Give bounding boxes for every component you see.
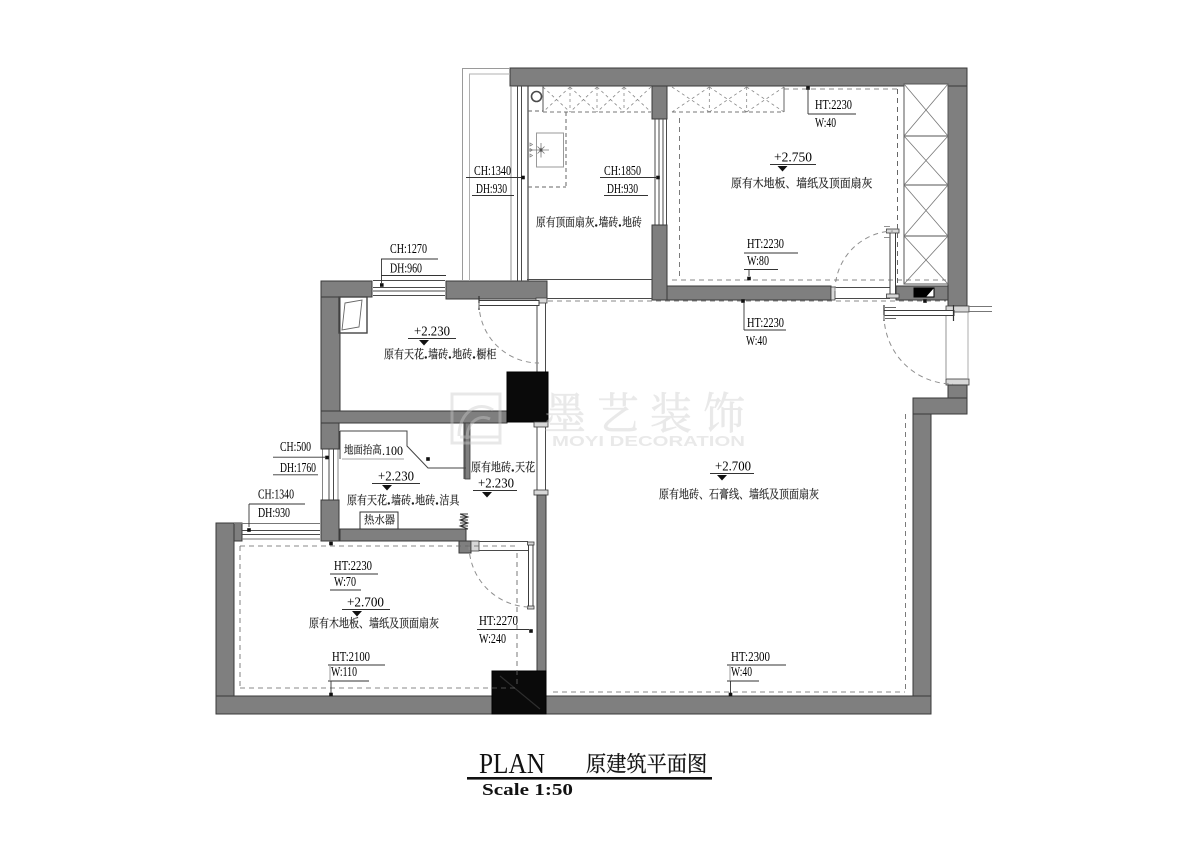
svg-text:HT:2230: HT:2230 — [334, 558, 372, 573]
svg-text:HT:2270: HT:2270 — [479, 613, 518, 628]
svg-text:CH:1270: CH:1270 — [390, 241, 427, 256]
svg-text:CH:1850: CH:1850 — [604, 163, 641, 178]
svg-text:Scale 1:50: Scale 1:50 — [482, 780, 573, 799]
svg-text:HT:2230: HT:2230 — [747, 236, 784, 251]
svg-text:DH:1760: DH:1760 — [280, 460, 316, 475]
svg-text:MOYI DECORATION: MOYI DECORATION — [552, 433, 745, 450]
svg-text:HT:2230: HT:2230 — [747, 315, 784, 330]
svg-text:HT:2100: HT:2100 — [332, 649, 370, 664]
svg-text:PLAN: PLAN — [479, 748, 545, 780]
svg-text:+2.700: +2.700 — [715, 459, 751, 474]
svg-text:DH:930: DH:930 — [476, 181, 507, 196]
svg-text:W:40: W:40 — [731, 664, 752, 679]
svg-text:+2.230: +2.230 — [414, 324, 450, 339]
svg-text:W:110: W:110 — [331, 664, 357, 679]
svg-text:CH:500: CH:500 — [280, 439, 311, 454]
svg-text:W:80: W:80 — [747, 253, 769, 268]
svg-text:W:40: W:40 — [746, 333, 767, 348]
svg-text:W:70: W:70 — [334, 574, 356, 589]
svg-text:HT:2300: HT:2300 — [731, 649, 770, 664]
svg-text:W:240: W:240 — [479, 631, 506, 646]
svg-text:CH:1340: CH:1340 — [474, 163, 511, 178]
svg-text:DH:930: DH:930 — [258, 505, 290, 520]
svg-text:+2.750: +2.750 — [774, 150, 812, 165]
svg-text:.100: .100 — [382, 443, 403, 458]
svg-text:HT:2230: HT:2230 — [815, 97, 852, 112]
svg-text:+2.230: +2.230 — [478, 476, 514, 491]
svg-text:DH:930: DH:930 — [607, 181, 638, 196]
svg-text:+2.700: +2.700 — [347, 596, 384, 611]
svg-text:DH:960: DH:960 — [390, 261, 422, 276]
svg-text:W:40: W:40 — [815, 115, 836, 130]
svg-text:CH:1340: CH:1340 — [258, 487, 294, 502]
svg-text:+2.230: +2.230 — [378, 469, 414, 484]
